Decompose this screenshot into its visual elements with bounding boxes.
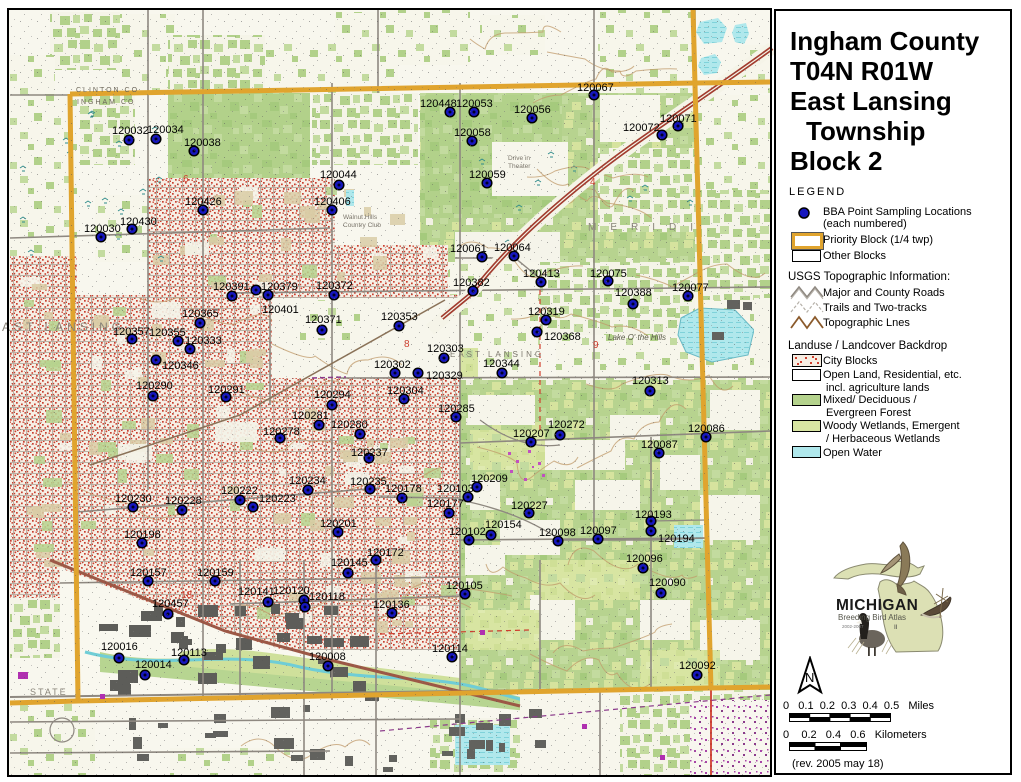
svg-text:II: II <box>894 624 898 631</box>
svg-text:N: N <box>805 670 814 685</box>
svg-text:2002-2007: 2002-2007 <box>842 624 864 629</box>
svg-text:MICHIGAN: MICHIGAN <box>836 597 918 614</box>
svg-text:Breeding Bird Atlas: Breeding Bird Atlas <box>838 613 906 622</box>
